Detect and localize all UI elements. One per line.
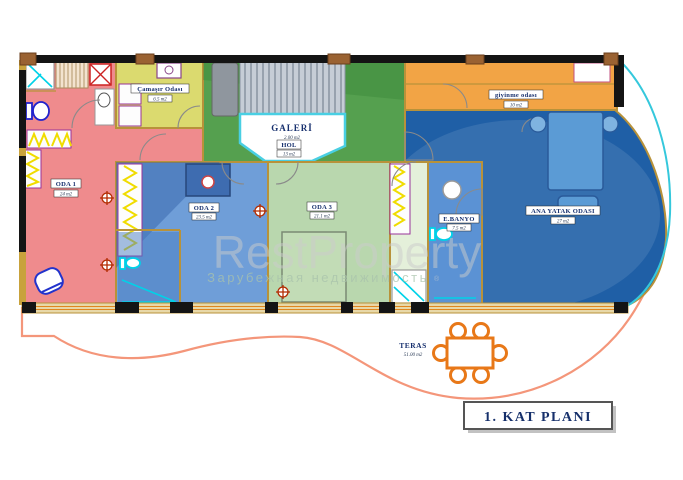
- toilet-icon: [120, 258, 140, 269]
- washer-icon: [157, 63, 181, 78]
- watermark-reg-icon: ®: [434, 275, 440, 283]
- title-block: 1. KAT PLANI: [464, 402, 616, 433]
- chair-icon: [451, 324, 466, 339]
- nightstand-icon: [602, 116, 618, 132]
- room-area-teras: 51.00 m2: [404, 353, 423, 358]
- floor-plan-svg: TERAS 51.00 m2: [0, 0, 683, 480]
- svg-text:27 m2: 27 m2: [557, 220, 570, 225]
- svg-text:ANA YATAK ODASI: ANA YATAK ODASI: [531, 208, 595, 215]
- svg-text:ODA 1: ODA 1: [56, 181, 76, 188]
- chair-icon: [474, 324, 489, 339]
- svg-text:6.5 m2: 6.5 m2: [153, 98, 167, 103]
- label-oda-2: ODA 2 23.5 m2: [189, 203, 219, 221]
- top-wall: [22, 55, 618, 63]
- label-hol: HOL 13 m2: [277, 140, 301, 158]
- ceiling-symbol: [202, 176, 214, 188]
- svg-text:GALERİ: GALERİ: [271, 123, 313, 133]
- chair-icon: [474, 368, 489, 383]
- bottom-wall: [22, 302, 628, 313]
- stair-landing: [212, 63, 238, 116]
- toilet-icon: [26, 102, 49, 120]
- nightstand-icon: [530, 116, 546, 132]
- chair-icon: [451, 368, 466, 383]
- svg-text:HOL: HOL: [281, 142, 297, 149]
- svg-text:E.BANYO: E.BANYO: [443, 216, 475, 223]
- staircase: [212, 62, 345, 117]
- bed-icon: [548, 112, 603, 190]
- svg-text:ODA 2: ODA 2: [194, 205, 214, 212]
- svg-text:24 m2: 24 m2: [60, 193, 73, 198]
- sink-icon: [443, 181, 461, 199]
- label-oda-3: ODA 3 21.1 m2: [307, 202, 337, 220]
- plan-title: 1. KAT PLANI: [484, 410, 592, 425]
- svg-text:10 m2: 10 m2: [510, 104, 523, 109]
- svg-text:ODA 3: ODA 3: [312, 204, 333, 211]
- svg-text:23.5 m2: 23.5 m2: [196, 216, 213, 221]
- giyinme-niche: [574, 63, 610, 82]
- room-label-teras: TERAS: [399, 341, 427, 350]
- floor-plan-canvas: TERAS 51.00 m2: [0, 0, 683, 480]
- svg-text:giyinme odası: giyinme odası: [495, 92, 537, 99]
- watermark-subtitle: Зарубежная недвижимость: [207, 270, 429, 285]
- table-icon: [447, 338, 493, 368]
- svg-text:Çamaşır Odası: Çamaşır Odası: [137, 86, 183, 93]
- watermark: RestProperty Зарубежная недвижимость ®: [207, 226, 481, 285]
- terrace-dining-table: [434, 324, 507, 383]
- label-oda-1: ODA 1 24 m2: [51, 179, 81, 198]
- svg-text:13 m2: 13 m2: [283, 153, 296, 158]
- svg-text:21.1 m2: 21.1 m2: [314, 215, 331, 220]
